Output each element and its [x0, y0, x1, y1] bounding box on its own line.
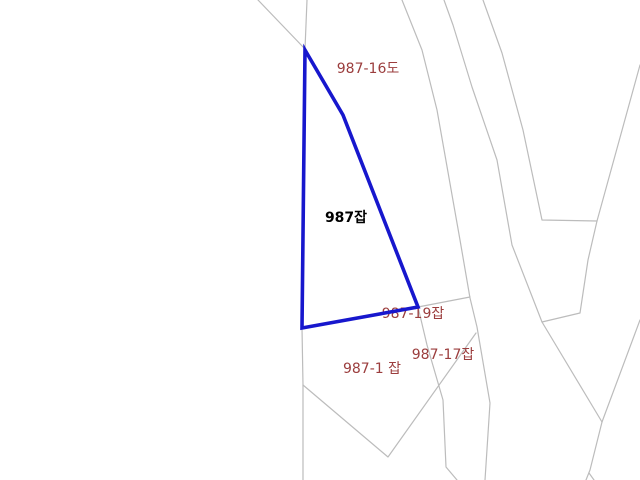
parcel-label-3: 987-17잡 — [412, 347, 475, 363]
parcel-label-1: 987잡 — [325, 209, 367, 226]
parcel-boundary-line-1 — [305, 0, 307, 49]
parcel-boundary-line-8 — [483, 0, 597, 221]
parcel-boundary-line-12 — [586, 422, 602, 480]
parcel-boundary-line-6 — [402, 0, 490, 480]
highlighted-parcel-outline — [302, 50, 418, 328]
cadastral-map-canvas[interactable]: 987-16도987잡987-19잡987-17잡987-1 잡 — [0, 0, 640, 480]
parcel-label-0: 987-16도 — [337, 61, 400, 77]
parcel-boundary-line-9 — [597, 65, 640, 221]
parcel-boundary-line-10 — [542, 221, 597, 322]
parcel-label-4: 987-1 잡 — [343, 361, 401, 377]
cadastral-map-viewport[interactable]: 987-16도987잡987-19잡987-17잡987-1 잡 — [0, 0, 640, 480]
parcel-boundary-line-2 — [302, 328, 303, 480]
parcel-boundary-line-11 — [602, 320, 640, 422]
parcel-boundary-line-13 — [589, 473, 594, 480]
parcel-boundary-line-0 — [258, 0, 305, 49]
parcel-boundary-line-4 — [418, 307, 457, 480]
